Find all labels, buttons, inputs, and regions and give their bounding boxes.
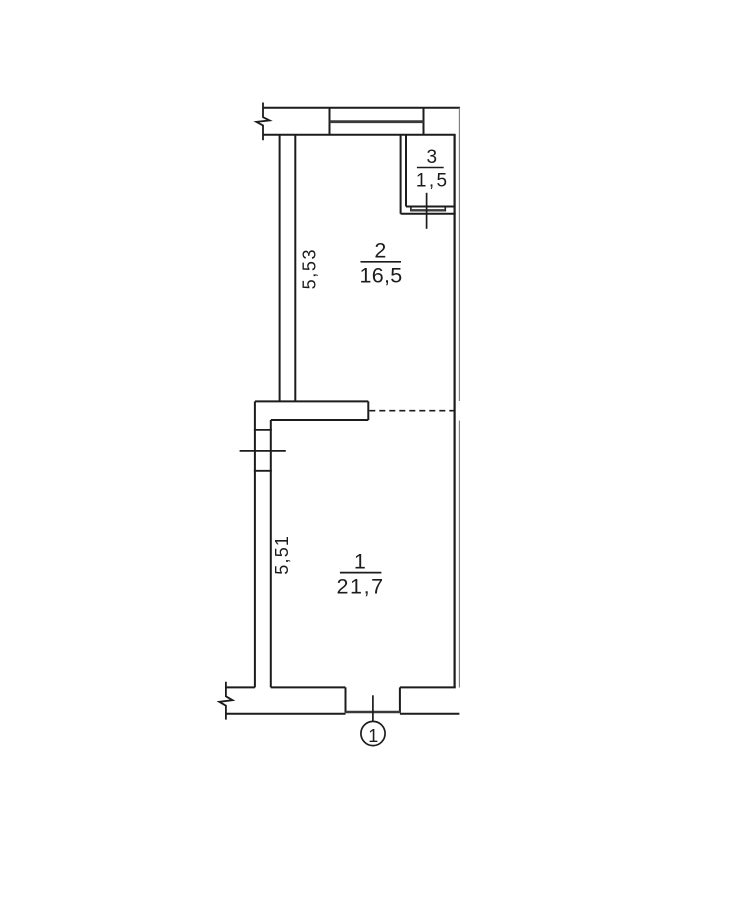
svg-text:5,53: 5,53 <box>300 248 320 289</box>
svg-text:3: 3 <box>427 147 438 168</box>
svg-text:1: 1 <box>368 726 378 746</box>
svg-text:2: 2 <box>374 239 386 263</box>
svg-text:5,51: 5,51 <box>272 535 292 575</box>
svg-text:21,7: 21,7 <box>336 575 384 599</box>
svg-text:1: 1 <box>354 549 366 573</box>
svg-text:16,5: 16,5 <box>359 263 402 287</box>
svg-text:1,5: 1,5 <box>416 171 450 192</box>
